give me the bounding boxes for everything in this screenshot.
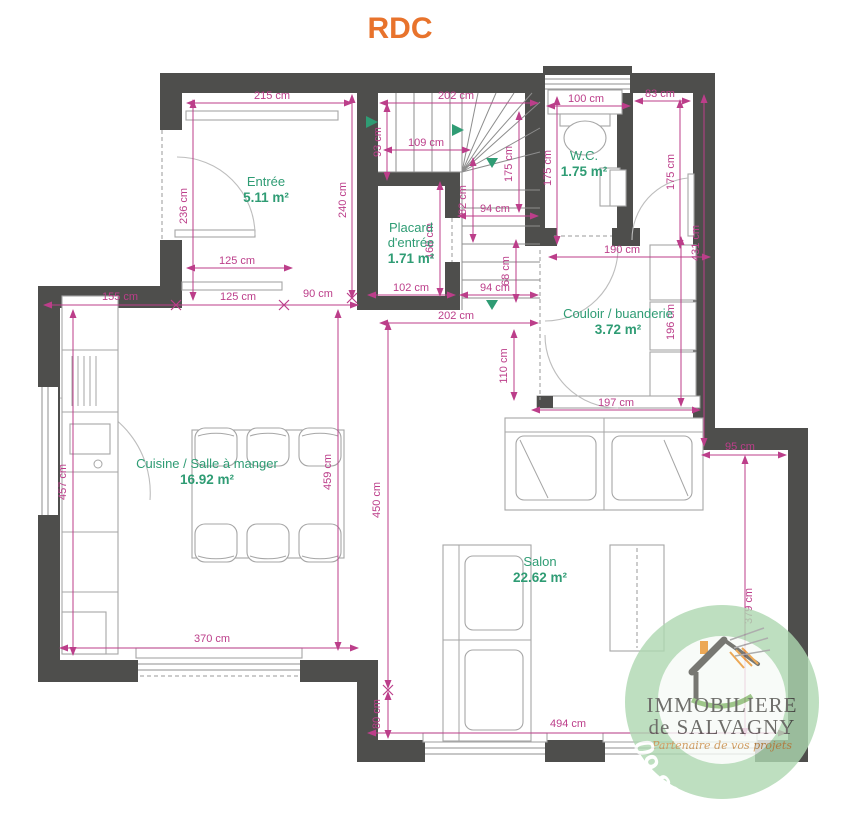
agency-name-line2: de SALVAGNY	[649, 715, 796, 739]
front-door-leaf	[175, 230, 255, 237]
dimension-label: 450 cm	[371, 482, 383, 518]
salon-window-left	[425, 740, 545, 762]
room-label: Salon	[523, 554, 556, 569]
agency-watermark: IMMOBILIERE de SALVAGNY Partenaire de vo…	[625, 605, 819, 826]
room-label: Couloir / buanderie	[563, 306, 673, 321]
room-area: 22.62 m²	[513, 570, 568, 585]
room-label: d'entrée	[388, 235, 435, 250]
dimension-label: 102 cm	[393, 282, 429, 294]
closet-shelf	[610, 170, 626, 206]
dimension-label: 155 cm	[102, 291, 138, 303]
dimension-label: 109 cm	[408, 137, 444, 149]
dimension-label: 236 cm	[178, 188, 190, 224]
furniture	[62, 90, 703, 741]
dimension-label: 95 cm	[725, 441, 755, 453]
room-label: W.C.	[570, 148, 598, 163]
room-area: 5.11 m²	[243, 190, 289, 205]
dimension-label: 125 cm	[219, 255, 255, 267]
dimension-label: 80 cm	[371, 699, 383, 729]
dimension-label: 197 cm	[598, 397, 634, 409]
agency-tagline: Partenaire de vos projets	[651, 739, 792, 752]
dimension-label: 90 cm	[303, 288, 333, 300]
kitchen-counter	[62, 296, 118, 654]
room-area: 1.71 m²	[388, 251, 435, 266]
floor-plan-page: RDC	[0, 0, 850, 826]
room-area: 1.75 m²	[561, 164, 608, 179]
dimension-label: 370 cm	[194, 633, 230, 645]
dimension-label: 457 cm	[57, 464, 69, 500]
dimension-label: 240 cm	[337, 182, 349, 218]
room-area: 16.92 m²	[180, 472, 235, 487]
dimension-label: 94 cm	[480, 282, 510, 294]
dimension-label: 494 cm	[550, 718, 586, 730]
kitchen-low-cabinet	[182, 282, 282, 290]
room-label: Placard	[389, 220, 433, 235]
dimension-label: 100 cm	[568, 93, 604, 105]
floor-plan-canvas: 215 cm202 cm100 cm83 cm236 cm240 cm93 cm…	[0, 0, 850, 826]
dimension-label: 190 cm	[604, 244, 640, 256]
dimension-label: 202 cm	[438, 90, 474, 102]
dimension-label: 431 cm	[690, 225, 702, 261]
dimension-label: 82 cm	[457, 185, 469, 215]
dimension-label: 175 cm	[503, 146, 515, 182]
room-area: 3.72 m²	[595, 322, 642, 337]
dimension-label: 215 cm	[254, 90, 290, 102]
entree-shelf	[186, 111, 338, 120]
dimension-label: 125 cm	[220, 291, 256, 303]
dining-table-set	[192, 428, 344, 562]
room-label: Cuisine / Salle à manger	[136, 456, 278, 471]
dimension-label: 93 cm	[372, 127, 384, 157]
kitchen-side-window	[36, 387, 58, 515]
dimension-label: 459 cm	[322, 454, 334, 490]
kitchen-sink	[70, 424, 110, 454]
agency-name-line1: IMMOBILIERE	[647, 693, 798, 717]
dimension-label: 94 cm	[480, 203, 510, 215]
room-label: Entrée	[247, 174, 285, 189]
dimension-label: 110 cm	[498, 348, 510, 383]
sofa-large	[505, 418, 703, 510]
kitchen-window	[138, 655, 300, 682]
dimension-label: 83 cm	[645, 88, 675, 100]
stair-direction-arrow-icon	[486, 300, 498, 310]
dimension-label: 175 cm	[542, 150, 554, 186]
dimension-label: 202 cm	[438, 310, 474, 322]
dimension-label: 175 cm	[665, 154, 677, 190]
